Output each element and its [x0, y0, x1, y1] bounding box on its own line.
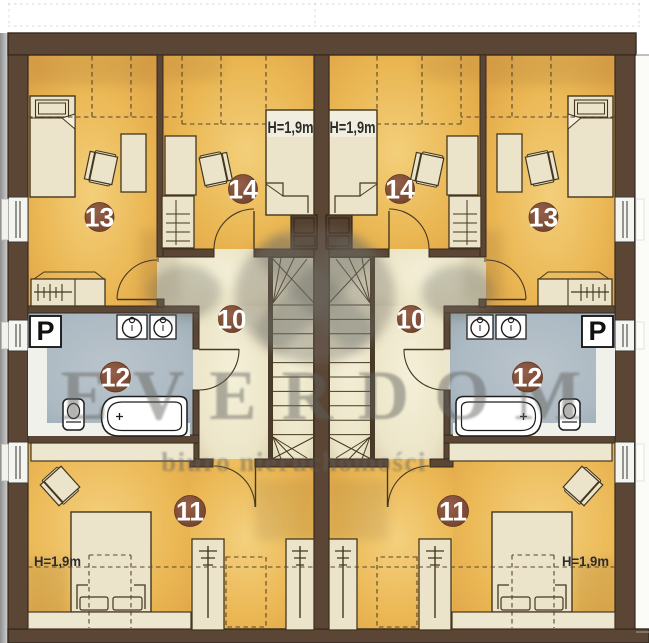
svg-text:12: 12: [513, 363, 542, 393]
svg-text:12: 12: [101, 363, 130, 393]
svg-text:11: 11: [176, 497, 204, 527]
svg-text:14: 14: [385, 175, 415, 205]
svg-text:H=1,9m: H=1,9m: [34, 553, 81, 569]
svg-text:P: P: [36, 316, 54, 346]
svg-text:14: 14: [228, 175, 258, 205]
svg-text:13: 13: [529, 203, 558, 233]
svg-text:10: 10: [396, 305, 425, 335]
svg-text:H=1,9m: H=1,9m: [268, 118, 314, 137]
svg-text:13: 13: [85, 203, 114, 233]
svg-text:biuro nieruchomości: biuro nieruchomości: [161, 447, 427, 477]
svg-text:10: 10: [217, 305, 246, 335]
svg-text:P: P: [588, 316, 606, 346]
svg-text:11: 11: [439, 497, 467, 527]
svg-text:H=1,9m: H=1,9m: [562, 553, 609, 569]
svg-text:H=1,9m: H=1,9m: [330, 118, 376, 137]
